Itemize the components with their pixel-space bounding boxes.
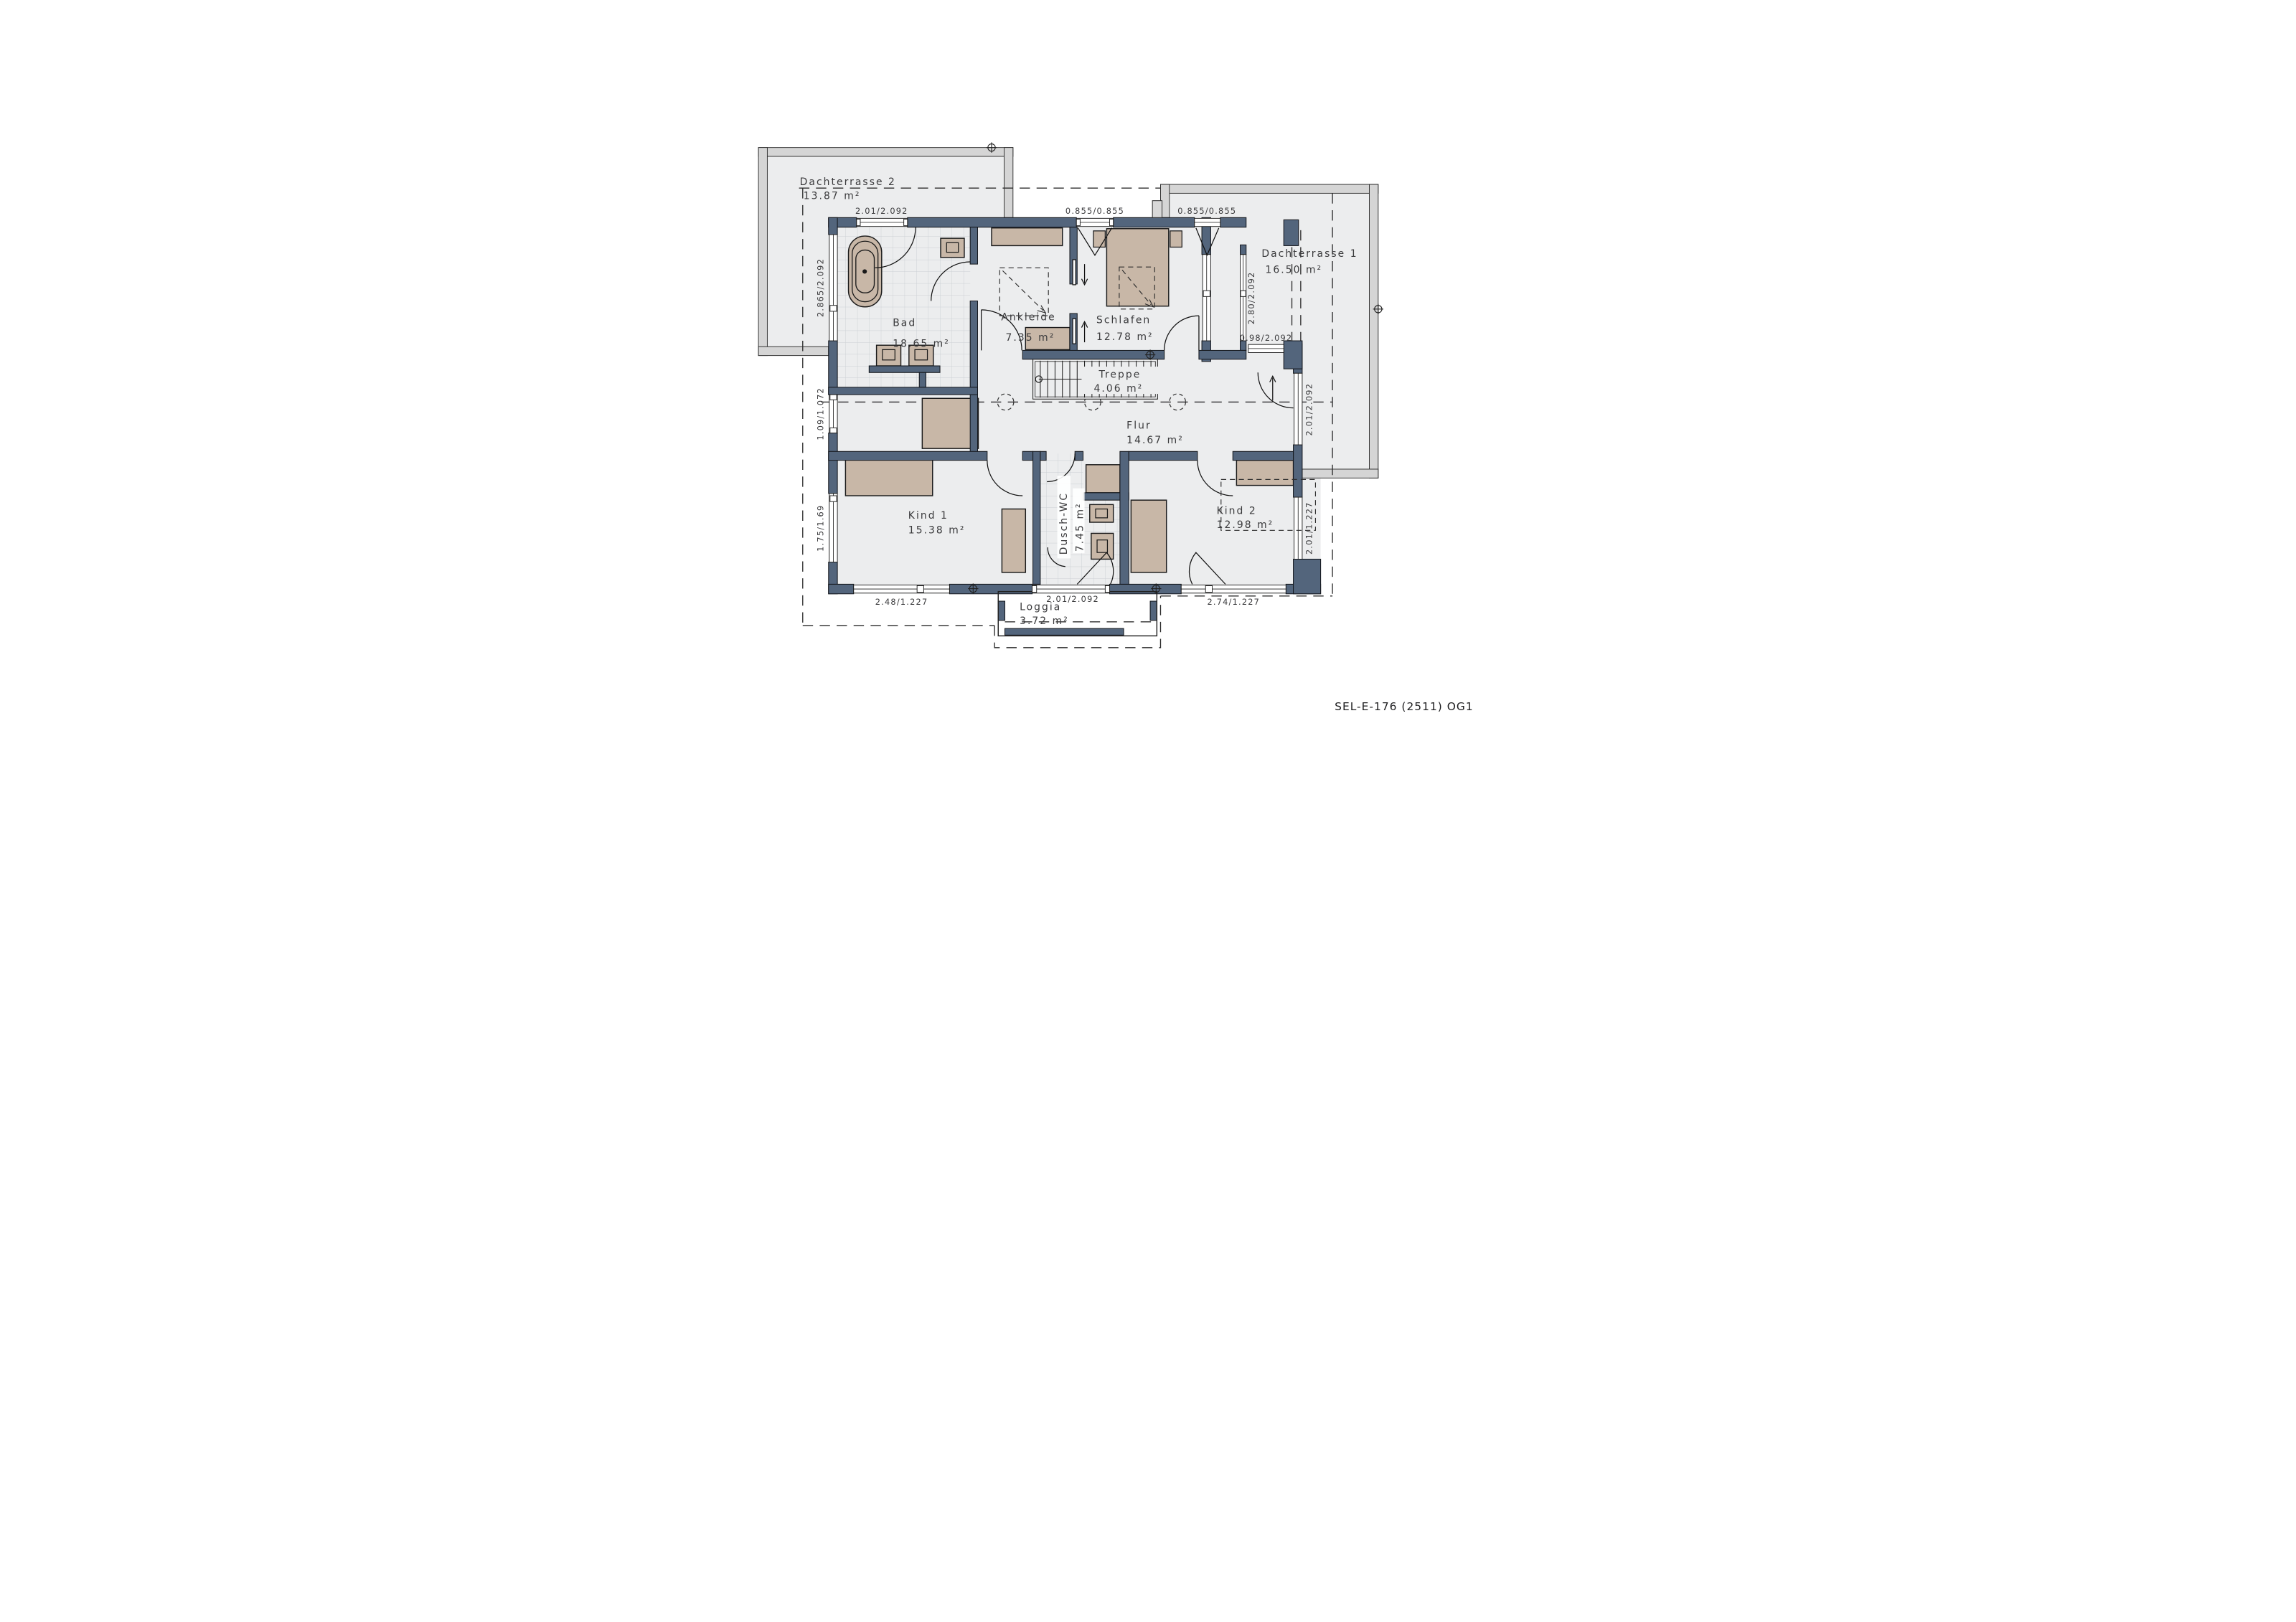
window-loggia-door — [1032, 585, 1110, 593]
label-dachterrasse2-area: 13.87 m² — [804, 191, 861, 202]
label-dachterrasse1-area: 16.50 m² — [1265, 264, 1322, 275]
dim-bottom-loggia: 2.01/2.092 — [1046, 595, 1099, 604]
window-recess-east — [1241, 255, 1246, 341]
ne-corner-pier — [1284, 220, 1299, 245]
schlafen-nightstand-left — [1093, 231, 1105, 247]
bad-toilet-icon — [941, 238, 964, 258]
label-kind1: Kind 1 — [908, 510, 949, 522]
label-loggia-area: 3.72 m² — [1020, 616, 1069, 627]
label-dachterrasse2: Dachterrasse 2 — [800, 176, 896, 188]
window-kind1-left — [829, 494, 837, 562]
label-kind2-area: 12.98 m² — [1217, 519, 1274, 531]
dim-left-bad: 2.865/2.092 — [817, 258, 826, 317]
label-duschwc-area: 7.45 m² — [1075, 502, 1086, 552]
label-schlafen-area: 12.78 m² — [1096, 331, 1154, 343]
window-terrace-door — [1248, 344, 1284, 352]
dim-right-kind2: 2.01/1.227 — [1304, 501, 1314, 555]
label-dachterrasse1: Dachterrasse 1 — [1261, 248, 1358, 260]
window-kind2-east — [1294, 497, 1302, 559]
label-schlafen: Schlafen — [1096, 314, 1151, 326]
floor-plan-page: Dachterrasse 2 13.87 m² Dachterrasse 1 1… — [574, 0, 1722, 811]
dim-terrace-door: 0.98/2.092 — [1240, 334, 1293, 343]
dim-top-schlafen: 0.855/0.855 — [1177, 207, 1236, 216]
window-storage-left — [829, 395, 837, 433]
label-kind2: Kind 2 — [1217, 506, 1257, 517]
chimney-pier — [1152, 201, 1162, 218]
label-flur: Flur — [1126, 420, 1152, 431]
floor-plan-canvas: Dachterrasse 2 13.87 m² Dachterrasse 1 1… — [574, 0, 1722, 811]
dim-bottom-kind1: 2.48/1.227 — [875, 598, 928, 607]
dim-top-ankleide: 0.855/0.855 — [1065, 207, 1124, 216]
flur-niche-closet — [1086, 465, 1120, 493]
window-ankleide-top — [1076, 218, 1113, 226]
window-kind2-bottom — [1181, 585, 1286, 593]
kind1-wardrobe — [1002, 509, 1025, 572]
dim-left-kind1: 1.75/1.69 — [817, 505, 826, 552]
window-schlafen-east — [1203, 255, 1210, 341]
label-duschwc: Dusch-WC — [1058, 492, 1070, 555]
kind1-bed — [845, 459, 932, 496]
window-flur-east — [1294, 373, 1302, 445]
schlafen-nightstand-right — [1170, 231, 1182, 247]
label-treppe: Treppe — [1098, 369, 1141, 380]
dim-top-bad: 2.01/2.092 — [855, 207, 908, 216]
bad-vanity-side — [919, 372, 926, 387]
window-bad-left — [829, 235, 837, 341]
dim-right-flur: 2.01/2.092 — [1304, 383, 1314, 436]
plan-title: SEL-E-176 (2511) OG1 — [1335, 700, 1474, 713]
dim-right-schlafen: 2.80/2.092 — [1247, 272, 1256, 325]
label-bad: Bad — [893, 317, 916, 329]
ankleide-wardrobe-top — [992, 228, 1063, 246]
duschwc-toilet-icon — [1091, 533, 1114, 559]
label-bad-area: 18.65 m² — [893, 338, 950, 349]
kind2-bed — [1131, 500, 1166, 572]
duschwc-sink-icon — [1090, 504, 1114, 522]
window-bad-top — [857, 218, 908, 226]
label-treppe-area: 4.06 m² — [1093, 383, 1143, 395]
label-ankleide: Ankleide — [1001, 311, 1055, 323]
kind2-closet — [1236, 461, 1293, 486]
label-kind1-area: 15.38 m² — [908, 524, 966, 536]
se-corner-pier — [1294, 559, 1321, 593]
window-kind1-bottom — [854, 585, 950, 593]
label-ankleide-area: 7.35 m² — [1006, 332, 1055, 344]
bathtub-icon — [849, 236, 882, 307]
dim-bottom-kind2: 2.74/1.227 — [1207, 598, 1260, 607]
label-flur-area: 14.67 m² — [1126, 435, 1184, 446]
bad-vanity-counter — [869, 366, 940, 372]
window-schlafen-top — [1195, 218, 1220, 226]
dim-left-storage: 1.09/1.072 — [817, 387, 826, 440]
